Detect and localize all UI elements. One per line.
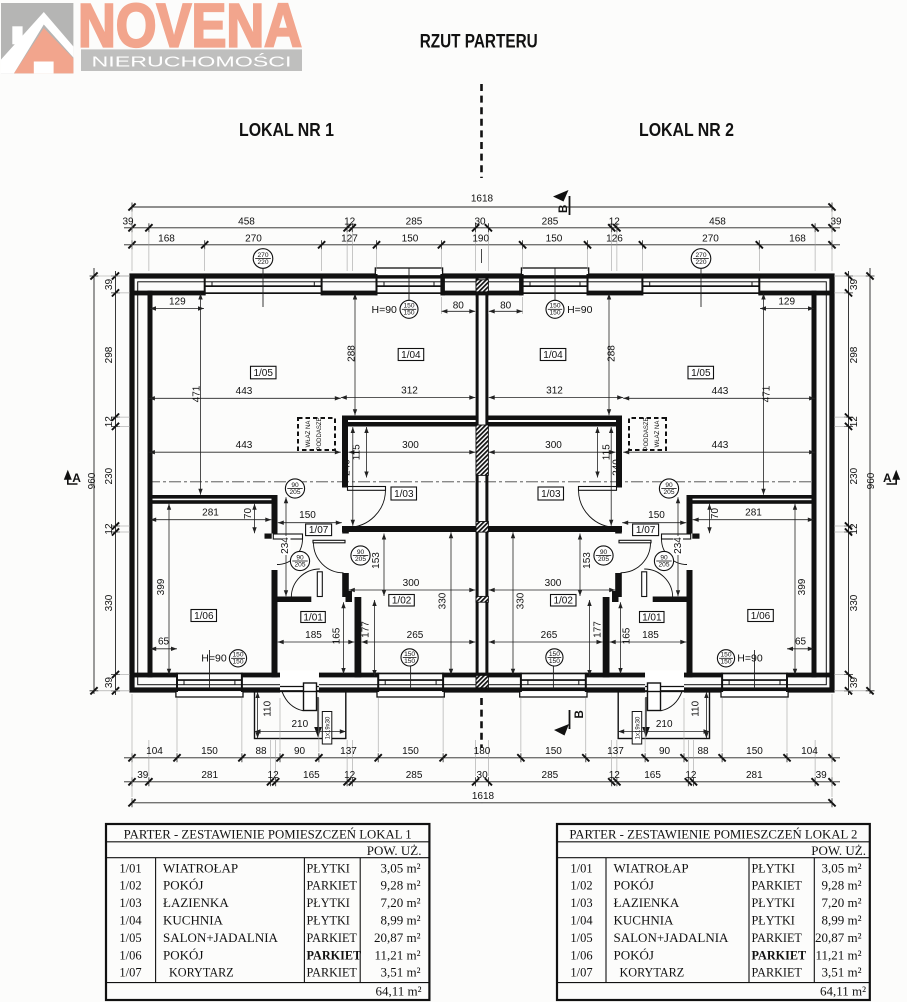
svg-text:90: 90 bbox=[659, 746, 671, 757]
svg-text:90: 90 bbox=[665, 482, 673, 489]
svg-text:234: 234 bbox=[280, 537, 291, 554]
svg-text:205: 205 bbox=[289, 489, 300, 496]
svg-text:9,28 m²: 9,28 m² bbox=[821, 878, 861, 893]
svg-text:1/04: 1/04 bbox=[401, 350, 421, 361]
svg-text:KUCHNIA: KUCHNIA bbox=[614, 913, 675, 928]
svg-text:288: 288 bbox=[347, 345, 358, 362]
svg-text:90: 90 bbox=[296, 554, 304, 561]
svg-text:240: 240 bbox=[612, 459, 623, 476]
svg-text:PARKIET: PARKIET bbox=[307, 948, 362, 962]
svg-text:1/07: 1/07 bbox=[119, 966, 141, 980]
svg-text:1/06: 1/06 bbox=[194, 611, 214, 622]
svg-text:3,05 m²: 3,05 m² bbox=[380, 860, 420, 875]
svg-text:270: 270 bbox=[245, 233, 262, 244]
svg-text:90: 90 bbox=[357, 549, 365, 556]
svg-text:64,11 m²: 64,11 m² bbox=[820, 984, 866, 999]
svg-text:PARKIET: PARKIET bbox=[307, 931, 358, 945]
svg-text:WŁAZ NA: WŁAZ NA bbox=[306, 421, 312, 448]
svg-text:168: 168 bbox=[158, 233, 175, 244]
svg-text:115: 115 bbox=[602, 444, 613, 460]
svg-text:3,51 m²: 3,51 m² bbox=[821, 965, 861, 980]
svg-text:150: 150 bbox=[648, 510, 665, 521]
svg-text:240: 240 bbox=[341, 459, 352, 476]
svg-text:3,51 m²: 3,51 m² bbox=[380, 965, 420, 980]
svg-text:88: 88 bbox=[255, 746, 267, 757]
svg-text:1/01: 1/01 bbox=[570, 861, 592, 875]
svg-text:PARKIET: PARKIET bbox=[752, 879, 803, 893]
svg-text:80: 80 bbox=[500, 301, 512, 312]
svg-text:8,99 m²: 8,99 m² bbox=[380, 913, 420, 928]
svg-text:1/04: 1/04 bbox=[543, 350, 563, 361]
svg-text:39: 39 bbox=[849, 677, 860, 689]
svg-text:3,05 m²: 3,05 m² bbox=[821, 860, 861, 875]
svg-text:1/03: 1/03 bbox=[541, 489, 561, 500]
svg-text:150: 150 bbox=[403, 310, 414, 317]
svg-text:312: 312 bbox=[546, 386, 563, 397]
svg-text:1/07: 1/07 bbox=[636, 525, 656, 536]
svg-text:471: 471 bbox=[192, 385, 203, 402]
svg-text:88: 88 bbox=[697, 746, 709, 757]
svg-text:90: 90 bbox=[291, 482, 299, 489]
svg-text:PODDASZE: PODDASZE bbox=[644, 417, 650, 450]
svg-text:177: 177 bbox=[593, 621, 604, 638]
svg-text:205: 205 bbox=[294, 561, 305, 568]
svg-text:150: 150 bbox=[549, 310, 560, 317]
svg-text:150: 150 bbox=[404, 651, 415, 658]
svg-text:A: A bbox=[883, 471, 892, 485]
svg-text:312: 312 bbox=[401, 386, 418, 397]
svg-text:90: 90 bbox=[600, 549, 608, 556]
svg-text:298: 298 bbox=[104, 346, 115, 363]
svg-text:65: 65 bbox=[795, 637, 807, 648]
svg-text:300: 300 bbox=[403, 578, 420, 589]
svg-text:115: 115 bbox=[352, 444, 363, 460]
svg-text:B: B bbox=[574, 710, 586, 718]
svg-text:399: 399 bbox=[156, 578, 167, 595]
svg-text:SALON+JADALNIA: SALON+JADALNIA bbox=[163, 930, 279, 945]
svg-text:300: 300 bbox=[545, 440, 562, 451]
svg-text:PŁYTKI: PŁYTKI bbox=[307, 861, 350, 875]
svg-text:165: 165 bbox=[622, 627, 633, 644]
svg-text:30: 30 bbox=[474, 216, 486, 227]
svg-text:LOKAL NR 2: LOKAL NR 2 bbox=[639, 120, 734, 140]
svg-text:443: 443 bbox=[236, 440, 253, 451]
svg-text:1/02: 1/02 bbox=[392, 596, 412, 607]
svg-text:POW. UŻ.: POW. UŻ. bbox=[811, 843, 866, 858]
svg-text:165: 165 bbox=[644, 770, 661, 781]
svg-text:150: 150 bbox=[232, 659, 243, 666]
svg-text:PARKIET: PARKIET bbox=[307, 879, 358, 893]
svg-text:PŁYTKI: PŁYTKI bbox=[752, 896, 795, 910]
svg-text:471: 471 bbox=[762, 385, 773, 402]
svg-text:265: 265 bbox=[541, 630, 558, 641]
svg-text:1/01: 1/01 bbox=[642, 612, 662, 623]
svg-text:12: 12 bbox=[104, 523, 115, 535]
svg-text:127: 127 bbox=[341, 233, 358, 244]
svg-text:270: 270 bbox=[695, 252, 706, 259]
svg-text:KORYTARZ: KORYTARZ bbox=[620, 966, 685, 980]
svg-text:285: 285 bbox=[542, 216, 559, 227]
svg-text:PARTER - ZESTAWIENIE POMIESZCZ: PARTER - ZESTAWIENIE POMIESZCZEŃ LOKAL 2 bbox=[569, 827, 857, 841]
svg-text:285: 285 bbox=[406, 770, 423, 781]
svg-text:281: 281 bbox=[745, 508, 762, 519]
svg-text:12: 12 bbox=[609, 770, 621, 781]
svg-text:330: 330 bbox=[516, 592, 527, 609]
svg-text:20,87 m²: 20,87 m² bbox=[815, 930, 862, 945]
svg-text:129: 129 bbox=[169, 297, 186, 308]
svg-text:330: 330 bbox=[104, 594, 115, 611]
svg-text:285: 285 bbox=[406, 216, 423, 227]
svg-text:443: 443 bbox=[712, 386, 729, 397]
svg-text:PODDASZE: PODDASZE bbox=[317, 417, 323, 450]
svg-text:ŁAZIENKA: ŁAZIENKA bbox=[163, 895, 229, 910]
svg-text:30: 30 bbox=[477, 770, 489, 781]
svg-text:1/05: 1/05 bbox=[691, 368, 711, 379]
svg-text:150: 150 bbox=[404, 658, 415, 665]
svg-text:12: 12 bbox=[344, 216, 356, 227]
svg-text:205: 205 bbox=[598, 556, 609, 563]
svg-text:PARKIET: PARKIET bbox=[752, 966, 803, 980]
svg-text:180: 180 bbox=[474, 746, 491, 757]
svg-text:129: 129 bbox=[778, 297, 795, 308]
svg-text:458: 458 bbox=[709, 216, 726, 227]
svg-text:PŁYTKI: PŁYTKI bbox=[307, 914, 350, 928]
svg-text:39: 39 bbox=[849, 279, 860, 291]
svg-text:285: 285 bbox=[542, 770, 559, 781]
svg-text:PŁYTKI: PŁYTKI bbox=[752, 861, 795, 875]
svg-text:153: 153 bbox=[371, 552, 382, 569]
svg-text:RZUT PARTERU: RZUT PARTERU bbox=[420, 32, 538, 53]
svg-text:230: 230 bbox=[104, 467, 115, 484]
svg-text:210: 210 bbox=[291, 719, 308, 730]
svg-text:1/04: 1/04 bbox=[570, 914, 593, 928]
svg-text:12: 12 bbox=[685, 770, 697, 781]
svg-text:1/02: 1/02 bbox=[553, 596, 573, 607]
svg-text:B: B bbox=[558, 205, 570, 213]
svg-text:12: 12 bbox=[104, 416, 115, 428]
svg-text:11,21 m²: 11,21 m² bbox=[374, 947, 420, 962]
svg-text:POKÓJ: POKÓJ bbox=[163, 947, 203, 962]
svg-text:150: 150 bbox=[545, 746, 562, 757]
svg-text:150: 150 bbox=[402, 746, 419, 757]
svg-text:150: 150 bbox=[546, 233, 563, 244]
svg-text:12: 12 bbox=[849, 416, 860, 428]
svg-text:12: 12 bbox=[849, 523, 860, 535]
svg-text:12: 12 bbox=[268, 770, 280, 781]
svg-text:270: 270 bbox=[702, 233, 719, 244]
svg-text:153: 153 bbox=[582, 552, 593, 569]
svg-text:H=90: H=90 bbox=[201, 653, 227, 665]
svg-text:110: 110 bbox=[691, 700, 702, 716]
svg-text:H=90: H=90 bbox=[371, 304, 397, 316]
svg-text:1/03: 1/03 bbox=[119, 896, 141, 910]
svg-text:177: 177 bbox=[360, 621, 371, 638]
svg-text:1618: 1618 bbox=[471, 194, 494, 205]
svg-text:A: A bbox=[72, 471, 81, 485]
svg-text:39: 39 bbox=[830, 216, 842, 227]
svg-text:150: 150 bbox=[746, 746, 763, 757]
svg-text:POW. UŻ.: POW. UŻ. bbox=[367, 843, 422, 858]
svg-text:150: 150 bbox=[232, 652, 243, 659]
svg-text:234: 234 bbox=[673, 537, 684, 554]
svg-text:PŁYTKI: PŁYTKI bbox=[752, 914, 795, 928]
svg-text:1x19x30: 1x19x30 bbox=[326, 716, 332, 739]
svg-text:90: 90 bbox=[294, 746, 306, 757]
svg-text:205: 205 bbox=[658, 561, 669, 568]
svg-text:230: 230 bbox=[849, 467, 860, 484]
svg-text:90: 90 bbox=[660, 554, 668, 561]
svg-text:SALON+JADALNIA: SALON+JADALNIA bbox=[614, 930, 730, 945]
svg-text:126: 126 bbox=[606, 233, 623, 244]
svg-text:281: 281 bbox=[746, 770, 763, 781]
svg-text:PARKIET: PARKIET bbox=[752, 931, 803, 945]
svg-text:288: 288 bbox=[607, 345, 618, 362]
svg-text:1/03: 1/03 bbox=[394, 489, 414, 500]
svg-text:168: 168 bbox=[789, 233, 806, 244]
svg-text:ŁAZIENKA: ŁAZIENKA bbox=[614, 895, 680, 910]
svg-text:270: 270 bbox=[257, 252, 268, 259]
svg-text:KUCHNIA: KUCHNIA bbox=[163, 913, 224, 928]
svg-text:70: 70 bbox=[710, 508, 721, 520]
svg-text:POKÓJ: POKÓJ bbox=[163, 878, 203, 893]
svg-text:300: 300 bbox=[545, 578, 562, 589]
svg-text:39: 39 bbox=[104, 677, 115, 689]
svg-text:39: 39 bbox=[122, 216, 134, 227]
svg-text:1/02: 1/02 bbox=[119, 879, 141, 893]
svg-text:1/06: 1/06 bbox=[570, 948, 592, 962]
svg-text:1/05: 1/05 bbox=[253, 368, 273, 379]
svg-text:165: 165 bbox=[332, 627, 343, 644]
svg-text:80: 80 bbox=[453, 301, 465, 312]
svg-text:137: 137 bbox=[607, 746, 624, 757]
svg-text:7,20 m²: 7,20 m² bbox=[380, 895, 420, 910]
svg-text:1/01: 1/01 bbox=[119, 861, 141, 875]
svg-text:399: 399 bbox=[797, 578, 808, 595]
svg-text:7,20 m²: 7,20 m² bbox=[821, 895, 861, 910]
svg-text:137: 137 bbox=[340, 746, 357, 757]
svg-text:KORYTARZ: KORYTARZ bbox=[169, 966, 234, 980]
svg-text:165: 165 bbox=[303, 770, 320, 781]
svg-text:443: 443 bbox=[712, 440, 729, 451]
svg-text:9,28 m²: 9,28 m² bbox=[380, 878, 420, 893]
svg-text:PARKIET: PARKIET bbox=[307, 966, 358, 980]
svg-text:190: 190 bbox=[472, 233, 489, 244]
svg-text:65: 65 bbox=[158, 637, 170, 648]
svg-text:330: 330 bbox=[438, 592, 449, 609]
svg-text:185: 185 bbox=[305, 630, 322, 641]
svg-text:1/04: 1/04 bbox=[119, 914, 142, 928]
svg-text:185: 185 bbox=[642, 630, 659, 641]
svg-text:150: 150 bbox=[549, 303, 560, 310]
svg-text:1/07: 1/07 bbox=[309, 525, 329, 536]
svg-text:150: 150 bbox=[402, 233, 419, 244]
svg-text:PARKIET: PARKIET bbox=[752, 948, 807, 962]
svg-text:220: 220 bbox=[257, 259, 268, 266]
svg-text:281: 281 bbox=[202, 508, 219, 519]
svg-text:104: 104 bbox=[801, 746, 818, 757]
svg-text:110: 110 bbox=[263, 700, 274, 716]
svg-text:150: 150 bbox=[720, 652, 731, 659]
svg-text:12: 12 bbox=[609, 216, 621, 227]
svg-text:1x19x30: 1x19x30 bbox=[635, 716, 641, 739]
svg-text:39: 39 bbox=[137, 770, 149, 781]
svg-text:LOKAL NR 1: LOKAL NR 1 bbox=[239, 120, 334, 140]
svg-text:1618: 1618 bbox=[472, 791, 495, 802]
svg-text:220: 220 bbox=[695, 259, 706, 266]
svg-text:210: 210 bbox=[656, 719, 673, 730]
svg-text:64,11 m²: 64,11 m² bbox=[375, 984, 421, 999]
svg-text:150: 150 bbox=[403, 303, 414, 310]
svg-text:205: 205 bbox=[663, 489, 674, 496]
svg-text:960: 960 bbox=[866, 472, 877, 489]
svg-text:39: 39 bbox=[816, 770, 828, 781]
svg-text:298: 298 bbox=[849, 346, 860, 363]
svg-text:39: 39 bbox=[104, 279, 115, 291]
svg-text:11,21 m²: 11,21 m² bbox=[815, 947, 861, 962]
svg-text:20,87 m²: 20,87 m² bbox=[374, 930, 421, 945]
svg-text:1/05: 1/05 bbox=[570, 931, 592, 945]
svg-text:150: 150 bbox=[299, 510, 316, 521]
svg-text:300: 300 bbox=[402, 440, 419, 451]
svg-text:PŁYTKI: PŁYTKI bbox=[307, 896, 350, 910]
svg-text:POKÓJ: POKÓJ bbox=[614, 878, 654, 893]
svg-text:150: 150 bbox=[549, 658, 560, 665]
svg-text:150: 150 bbox=[720, 659, 731, 666]
svg-text:1/02: 1/02 bbox=[570, 879, 592, 893]
svg-text:WIATROŁAP: WIATROŁAP bbox=[163, 860, 238, 875]
svg-text:281: 281 bbox=[201, 770, 218, 781]
svg-text:12: 12 bbox=[344, 770, 356, 781]
svg-text:205: 205 bbox=[355, 556, 366, 563]
svg-text:150: 150 bbox=[201, 746, 218, 757]
svg-text:WŁAZ NA: WŁAZ NA bbox=[655, 421, 661, 448]
svg-text:1/03: 1/03 bbox=[570, 896, 592, 910]
svg-text:H=90: H=90 bbox=[567, 304, 593, 316]
svg-text:1/01: 1/01 bbox=[303, 612, 323, 623]
svg-text:960: 960 bbox=[87, 472, 98, 489]
svg-text:PARTER - ZESTAWIENIE POMIESZCZ: PARTER - ZESTAWIENIE POMIESZCZEŃ LOKAL 1 bbox=[124, 827, 412, 841]
svg-text:1/06: 1/06 bbox=[119, 948, 141, 962]
svg-text:458: 458 bbox=[238, 216, 255, 227]
svg-text:330: 330 bbox=[849, 594, 860, 611]
svg-text:1/07: 1/07 bbox=[570, 966, 592, 980]
svg-text:104: 104 bbox=[146, 746, 163, 757]
svg-text:265: 265 bbox=[407, 630, 424, 641]
svg-text:443: 443 bbox=[236, 386, 253, 397]
svg-text:WIATROŁAP: WIATROŁAP bbox=[614, 860, 689, 875]
svg-text:H=90: H=90 bbox=[737, 653, 763, 665]
svg-text:1/06: 1/06 bbox=[751, 611, 771, 622]
svg-text:POKÓJ: POKÓJ bbox=[614, 947, 654, 962]
svg-text:150: 150 bbox=[549, 651, 560, 658]
svg-text:8,99 m²: 8,99 m² bbox=[821, 913, 861, 928]
svg-text:70: 70 bbox=[243, 508, 254, 520]
svg-text:1/05: 1/05 bbox=[119, 931, 141, 945]
svg-text:NIERUCHOMOŚCI: NIERUCHOMOŚCI bbox=[92, 53, 292, 71]
